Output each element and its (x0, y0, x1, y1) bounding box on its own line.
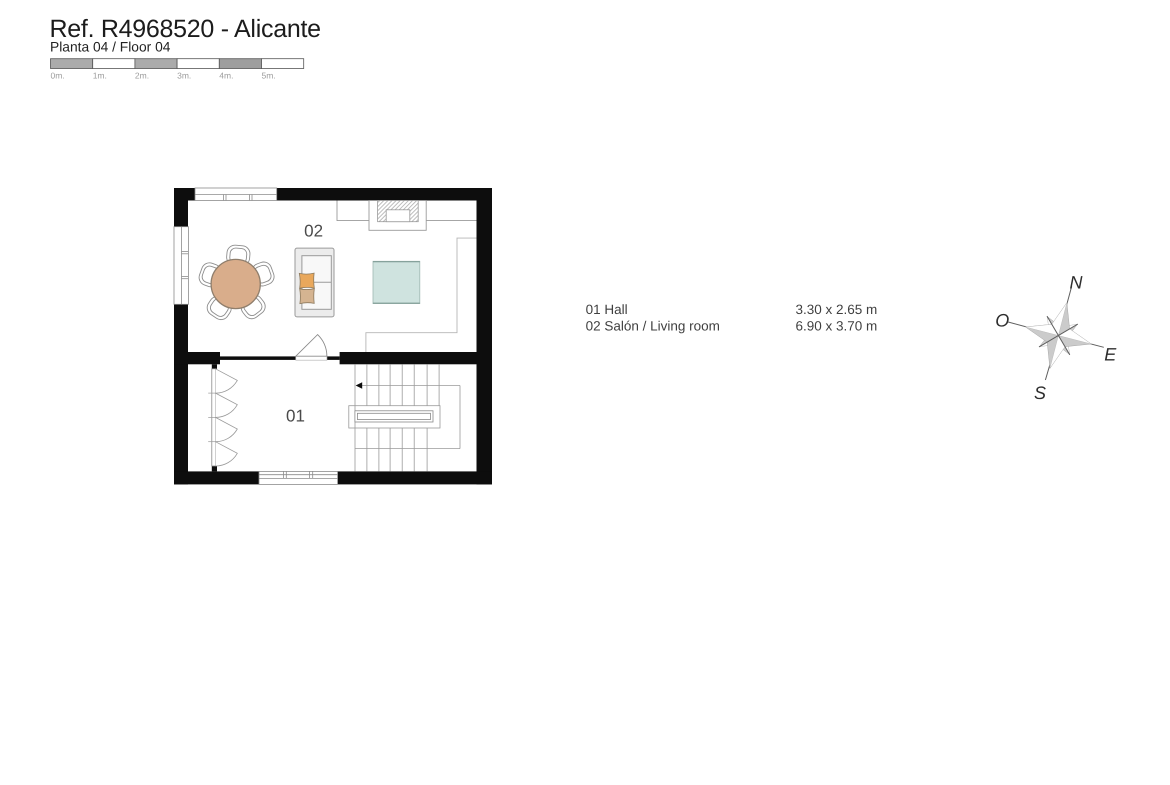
svg-text:2m.: 2m. (135, 71, 149, 81)
svg-text:3.30 x 2.65 m: 3.30 x 2.65 m (796, 302, 878, 317)
svg-text:Planta 04 / Floor 04: Planta 04 / Floor 04 (50, 40, 171, 55)
svg-text:01: 01 (286, 407, 305, 426)
svg-text:02 Salón / Living room: 02 Salón / Living room (586, 319, 720, 334)
svg-text:4m.: 4m. (219, 71, 233, 81)
svg-text:O: O (995, 311, 1009, 331)
svg-text:5m.: 5m. (262, 71, 276, 81)
svg-text:1m.: 1m. (93, 71, 107, 81)
svg-text:E: E (1104, 344, 1117, 364)
svg-text:02: 02 (304, 222, 323, 241)
svg-text:S: S (1034, 383, 1046, 403)
svg-text:N: N (1070, 273, 1084, 293)
svg-text:6.90 x 3.70 m: 6.90 x 3.70 m (796, 319, 878, 334)
svg-text:0m.: 0m. (51, 71, 65, 81)
svg-text:01 Hall: 01 Hall (586, 302, 628, 317)
svg-text:3m.: 3m. (177, 71, 191, 81)
